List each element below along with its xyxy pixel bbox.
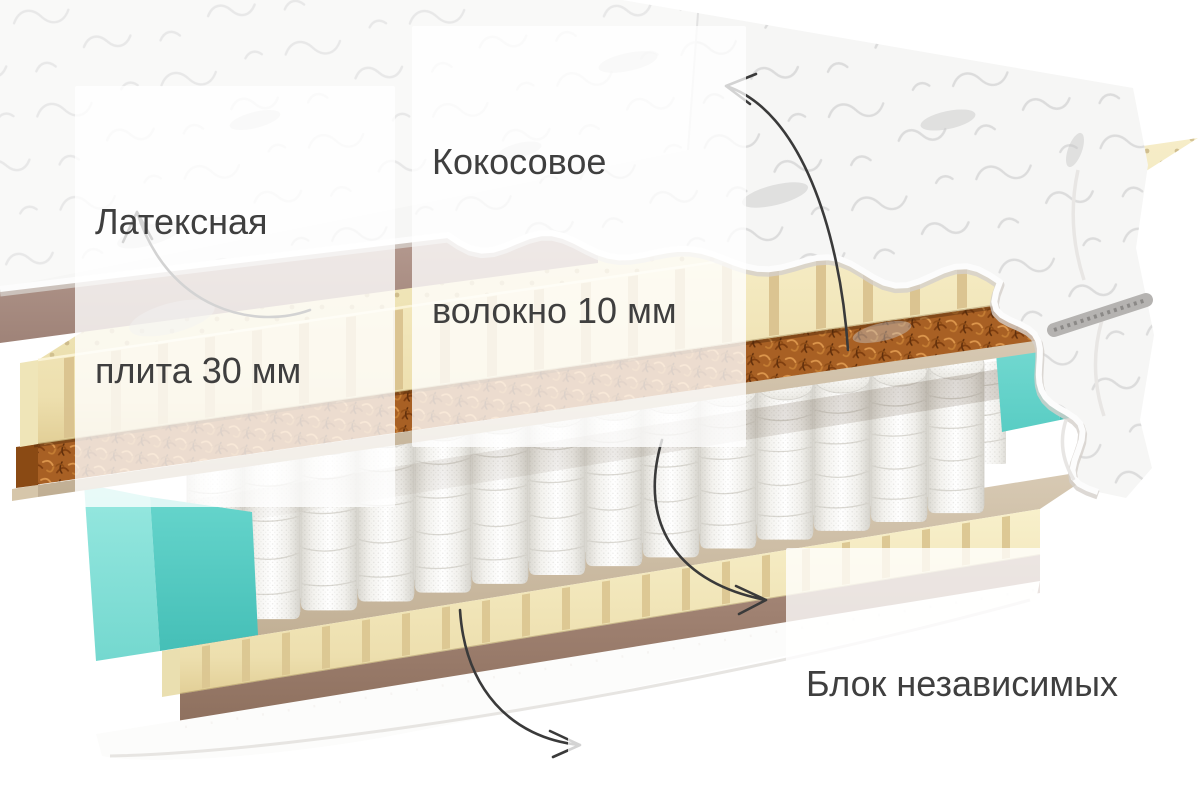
label-latex-bottom: Латексная плита 20 мм: [568, 716, 988, 800]
label-latex-top-line2: плита 30 мм: [95, 346, 375, 396]
label-latex-top: Латексная плита 30 мм: [75, 86, 395, 507]
label-coconut-line2: волокно 10 мм: [432, 286, 726, 336]
label-coconut-line1: Кокосовое: [432, 137, 726, 187]
foam-side-block-left: [84, 484, 258, 661]
label-latex-top-line1: Латексная: [95, 197, 375, 247]
label-coconut: Кокосовое волокно 10 мм: [412, 26, 746, 447]
mattress-diagram: Латексная плита 30 мм Кокосовое волокно …: [0, 0, 1200, 800]
label-springs-line1: Блок независимых: [806, 659, 1156, 709]
